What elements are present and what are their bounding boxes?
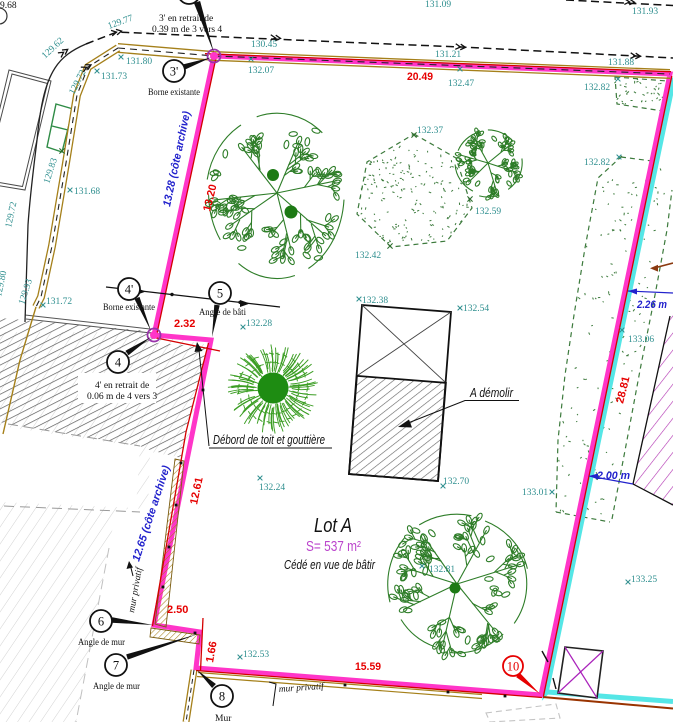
svg-text:132.53: 132.53 — [243, 650, 269, 660]
svg-text:133.01: 133.01 — [522, 488, 548, 498]
svg-text:Borne existante: Borne existante — [148, 88, 200, 98]
svg-text:3': 3' — [170, 64, 179, 78]
svg-text:132.07: 132.07 — [248, 66, 274, 76]
svg-text:8: 8 — [219, 689, 225, 703]
svg-text:Mur: Mur — [215, 714, 232, 722]
svg-text:131.72: 131.72 — [46, 297, 72, 307]
svg-text:10: 10 — [507, 659, 520, 673]
svg-text:Débord de toit et gouttière: Débord de toit et gouttière — [213, 432, 325, 447]
svg-text:Angle de bâti: Angle de bâti — [199, 308, 246, 318]
svg-text:2.32: 2.32 — [174, 318, 195, 330]
svg-text:132.38: 132.38 — [362, 296, 388, 306]
svg-text:4: 4 — [115, 355, 122, 369]
svg-text:132.81: 132.81 — [429, 565, 455, 575]
svg-text:132.47: 132.47 — [448, 79, 474, 89]
svg-text:132.54: 132.54 — [463, 304, 489, 314]
svg-text:132.42: 132.42 — [355, 251, 381, 261]
svg-text:Cédé en vue de bâtir: Cédé en vue de bâtir — [284, 557, 375, 572]
svg-text:130.45: 130.45 — [251, 40, 277, 50]
svg-text:5: 5 — [217, 286, 223, 300]
svg-text:131.68: 131.68 — [74, 187, 100, 197]
svg-text:A démolir: A démolir — [469, 386, 513, 400]
svg-text:133.06: 133.06 — [628, 335, 654, 345]
svg-text:131.80: 131.80 — [126, 57, 152, 67]
svg-text:131.09: 131.09 — [425, 0, 451, 10]
svg-text:4' en retrait de: 4' en retrait de — [95, 381, 149, 391]
svg-text:3' en retrait de: 3' en retrait de — [159, 14, 213, 24]
svg-text:6: 6 — [98, 614, 104, 628]
svg-text:132.59: 132.59 — [475, 207, 501, 217]
svg-text:132.82: 132.82 — [584, 83, 610, 93]
svg-text:131.73: 131.73 — [101, 72, 127, 82]
svg-text:131.93: 131.93 — [632, 7, 658, 17]
svg-text:131.21: 131.21 — [435, 50, 461, 60]
svg-text:2.00 m: 2.00 m — [596, 470, 630, 482]
svg-text:Angle de mur: Angle de mur — [78, 638, 126, 648]
svg-text:0.39 m de 3 vers 4: 0.39 m de 3 vers 4 — [152, 25, 222, 35]
svg-text:9.68: 9.68 — [0, 1, 17, 11]
svg-text:20.49: 20.49 — [407, 71, 433, 83]
svg-text:7: 7 — [113, 658, 119, 672]
svg-text:132.24: 132.24 — [259, 483, 285, 493]
svg-text:Borne existante: Borne existante — [103, 303, 155, 313]
svg-text:132.70: 132.70 — [443, 477, 469, 487]
svg-text:Lot A: Lot A — [314, 515, 352, 537]
svg-text:15.59: 15.59 — [355, 661, 381, 673]
svg-text:132.82: 132.82 — [584, 158, 610, 168]
svg-text:133.25: 133.25 — [631, 575, 657, 585]
svg-text:Angle de mur: Angle de mur — [93, 682, 141, 692]
svg-text:4': 4' — [125, 282, 134, 296]
svg-text:131.88: 131.88 — [608, 58, 634, 68]
svg-text:0.06 m de 4 vers 3: 0.06 m de 4 vers 3 — [87, 392, 157, 402]
svg-text:2.26 m: 2.26 m — [636, 299, 667, 311]
svg-text:S= 537 m²: S= 537 m² — [306, 539, 361, 555]
svg-text:132.37: 132.37 — [417, 126, 443, 136]
svg-text:132.28: 132.28 — [246, 319, 272, 329]
svg-text:2.50: 2.50 — [167, 604, 188, 616]
